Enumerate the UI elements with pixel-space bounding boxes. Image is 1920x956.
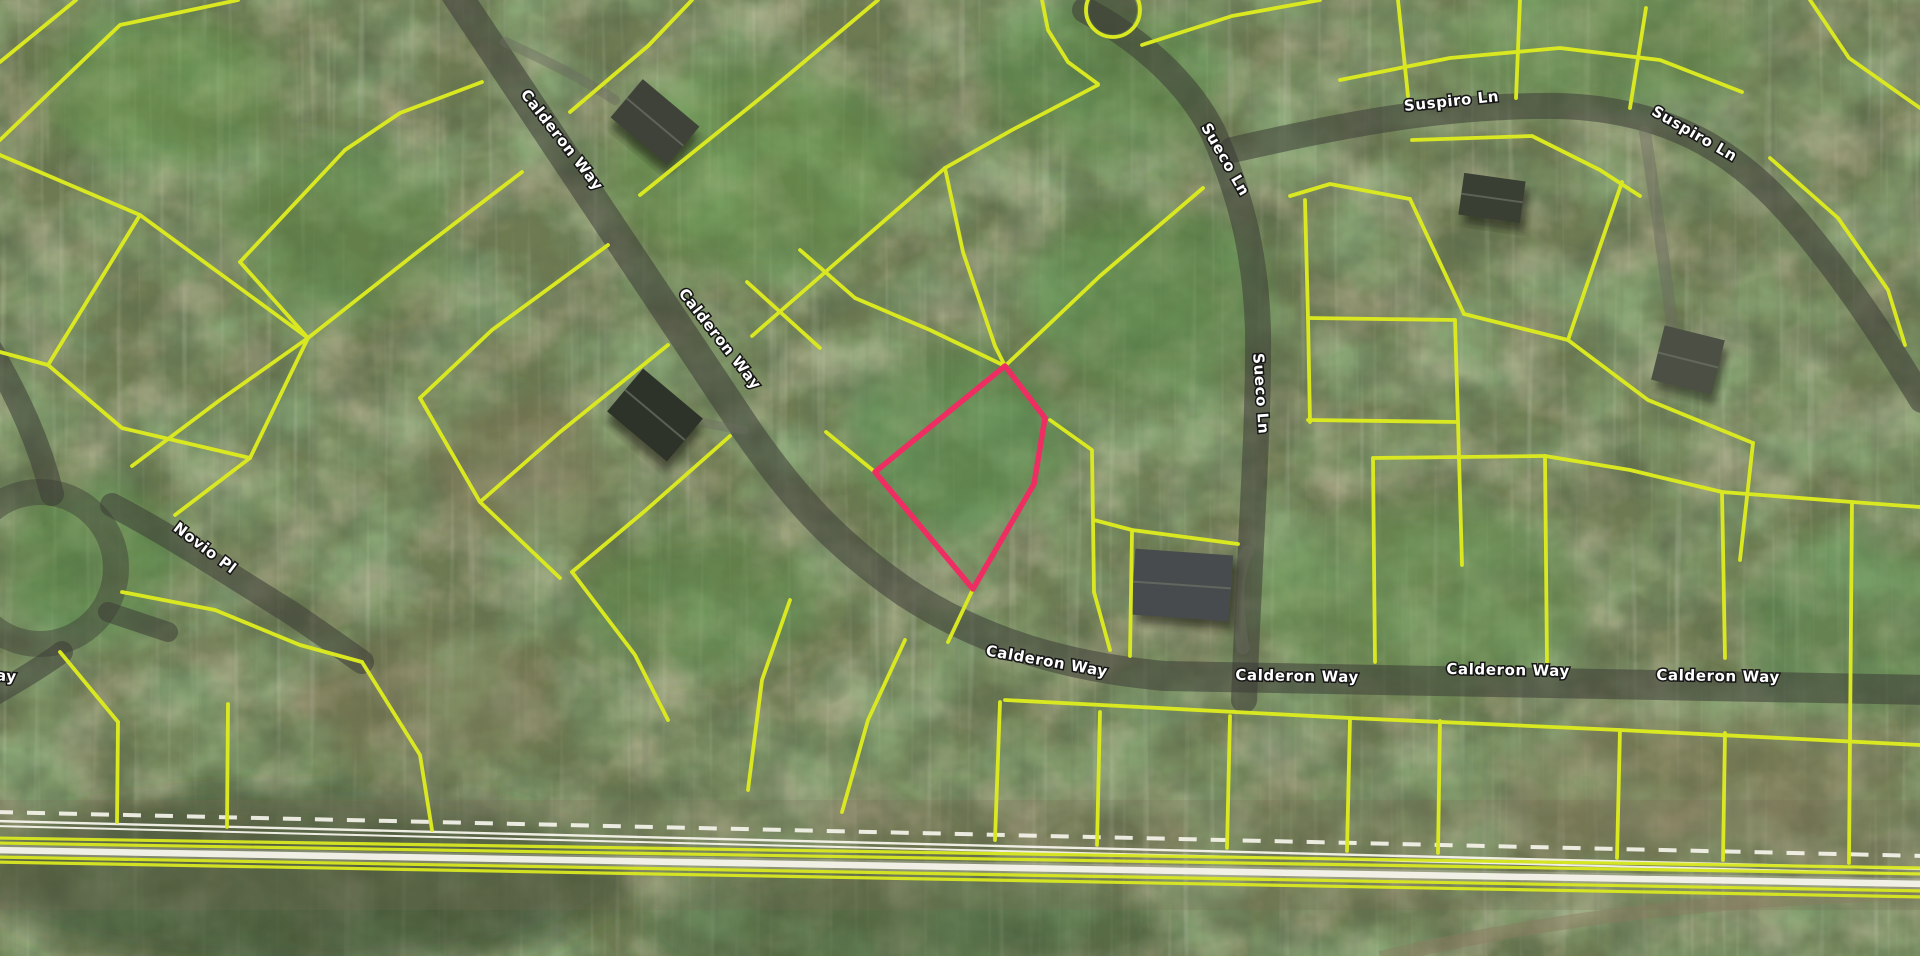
parcel-line <box>227 704 228 827</box>
canopy-patch <box>230 140 450 320</box>
parcel-line <box>1308 318 1455 320</box>
parcel-line <box>1130 532 1132 656</box>
parcel-line <box>1308 420 1458 422</box>
canopy-patch <box>580 530 820 670</box>
parcel-line <box>1545 456 1547 662</box>
parcel-line <box>1850 502 1852 738</box>
aerial-imagery <box>0 0 1920 956</box>
canopy-patch <box>40 10 280 170</box>
road-label: Calderon Way <box>1446 660 1570 680</box>
canopy-patch <box>430 400 610 540</box>
canopy-patch <box>850 350 1070 530</box>
parcel-line <box>1373 458 1375 662</box>
parcel-line <box>1373 456 1545 458</box>
road-label: ay <box>0 666 17 685</box>
house-ne <box>1457 173 1531 232</box>
road-label: Calderon Way <box>1656 666 1780 686</box>
parcel-line <box>1723 733 1725 860</box>
parcel-line <box>117 722 118 822</box>
map-canvas[interactable]: Calderon WayCalderon WayCalderon WayCald… <box>0 0 1920 956</box>
road-label: Calderon Way <box>1235 666 1359 686</box>
aerial-parcel-map[interactable]: Calderon WayCalderon WayCalderon WayCald… <box>0 0 1920 956</box>
house-by-subject <box>1130 549 1239 630</box>
parcel-line <box>1438 721 1440 853</box>
parcel-line <box>1849 738 1850 863</box>
parcel-line <box>1308 318 1310 422</box>
